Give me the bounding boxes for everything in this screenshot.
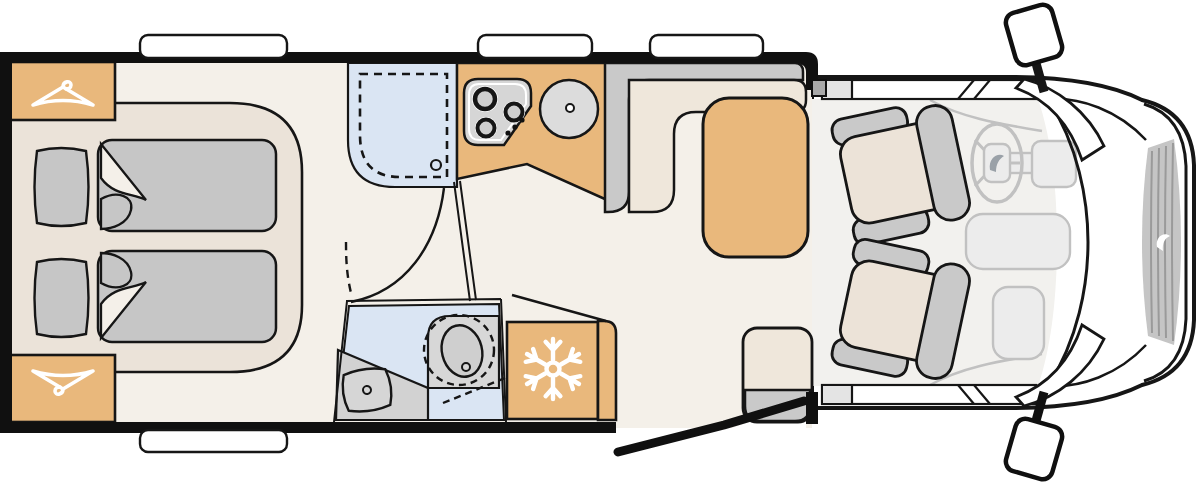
window-bottom-rear [140, 430, 287, 452]
front-grille [1142, 139, 1181, 345]
wardrobe-rear-bottom [10, 355, 115, 422]
dashboard-panel-center [966, 214, 1070, 269]
floorplan-page [0, 0, 1200, 484]
fridge-door-edge [598, 321, 616, 420]
duvet-left-bed [98, 140, 276, 231]
window-strip [822, 80, 1036, 99]
window-top-rear [140, 35, 287, 58]
cab-side-window-top [822, 80, 1036, 99]
pillow-left-bed [35, 148, 89, 226]
burner-small [506, 104, 523, 121]
sink-drain [566, 104, 574, 112]
window-pane-small [823, 386, 852, 403]
pillow-right-bed [35, 259, 89, 337]
wall-bottom [0, 422, 616, 433]
dashboard-panel-right [1032, 141, 1076, 187]
camper-floorplan [0, 0, 1200, 484]
wardrobe-rear-top [10, 62, 115, 120]
window-top-middle [478, 35, 592, 58]
window-top-front [650, 35, 763, 58]
hob-knob [512, 124, 517, 129]
shower-cubicle [348, 63, 457, 187]
burner-large [475, 89, 495, 109]
shower-drain [431, 160, 441, 170]
wall-rear [0, 52, 12, 433]
dinette-table [703, 98, 808, 257]
hob-knob [519, 117, 524, 122]
center-console [993, 287, 1044, 359]
duvet-right-bed [98, 251, 276, 342]
fridge-body [507, 322, 598, 419]
habitation-area [0, 35, 826, 472]
cab-side-window-bottom [822, 385, 1036, 404]
basin-drain [462, 363, 470, 371]
wardrobe-cabinet [10, 62, 115, 120]
window-pane-small [823, 81, 852, 98]
window-strip [822, 385, 1036, 404]
burner-small [478, 120, 495, 137]
toilet-flush [362, 385, 371, 394]
toilet [340, 366, 393, 414]
b-pillar-stub [806, 392, 818, 424]
hob-knob [505, 130, 510, 135]
door-pillar [812, 80, 826, 96]
